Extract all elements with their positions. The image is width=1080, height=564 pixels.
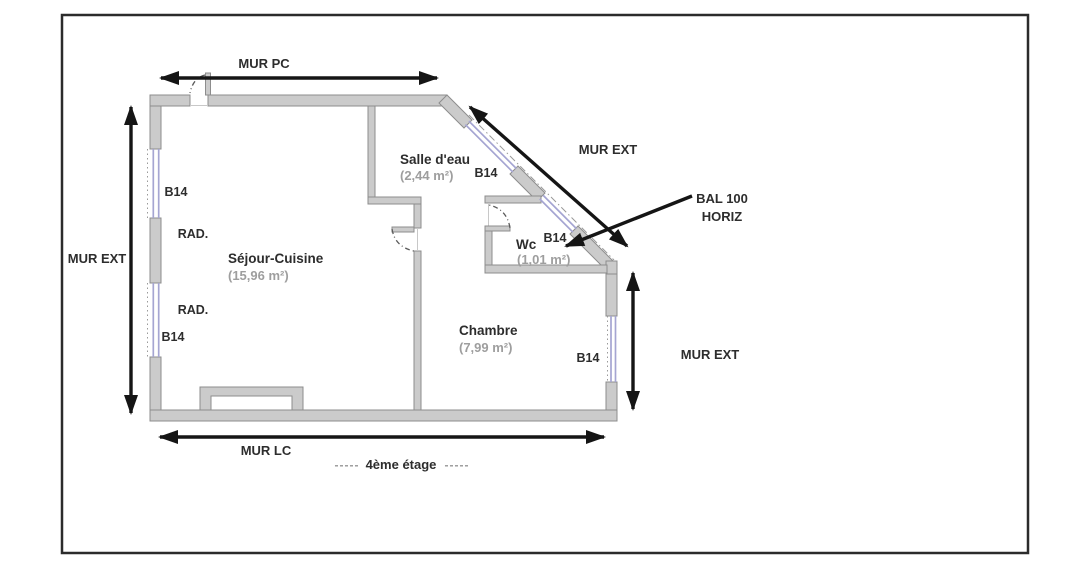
room-salle-eau-area: (2,44 m²) xyxy=(400,168,453,183)
label-mur-pc: MUR PC xyxy=(238,56,290,71)
label-mur-ext-right: MUR EXT xyxy=(681,347,740,362)
floor-plan-page: MUR PC MUR EXT MUR EXT MUR EXT MUR LC BA… xyxy=(0,0,1080,564)
wall-top-right xyxy=(208,95,447,106)
wall-top-left xyxy=(150,95,190,106)
wc-door-leaf xyxy=(485,226,510,231)
figure-border xyxy=(62,15,1028,553)
wc-wall-left xyxy=(485,227,492,267)
wall-bottom-recess xyxy=(200,387,303,410)
windows xyxy=(148,115,616,382)
label-b14-left-upper: B14 xyxy=(165,185,188,199)
label-b14-left-lower: B14 xyxy=(162,330,185,344)
wall-right-upper xyxy=(606,274,617,316)
wc-wall-top xyxy=(485,196,541,203)
room-sejour-area: (15,96 m²) xyxy=(228,268,289,283)
room-wc-area: (1,01 m²) xyxy=(517,252,570,267)
label-horiz: HORIZ xyxy=(702,209,743,224)
room-chambre-area: (7,99 m²) xyxy=(459,340,512,355)
caption-floor-text: 4ème étage xyxy=(366,457,437,472)
wall-bottom xyxy=(150,410,617,421)
room-wc-name: Wc xyxy=(516,237,537,252)
label-bal-100: BAL 100 xyxy=(696,191,748,206)
arrow-bal-100-pointer xyxy=(566,196,692,246)
label-b14-diag-upper: B14 xyxy=(475,166,498,180)
window-diagonal-lower xyxy=(543,195,576,228)
label-mur-ext-diag: MUR EXT xyxy=(579,142,638,157)
label-b14-right: B14 xyxy=(577,351,600,365)
window-diagonal-lower-inner xyxy=(540,199,573,232)
room-sejour-name: Séjour-Cuisine xyxy=(228,251,324,266)
wall-diagonal-upper xyxy=(439,95,472,128)
wc-door-swing xyxy=(489,205,510,228)
partition-step xyxy=(368,197,421,204)
partition-lower xyxy=(414,251,421,410)
label-mur-ext-left: MUR EXT xyxy=(68,251,127,266)
label-mur-lc: MUR LC xyxy=(241,443,292,458)
wall-left-middle xyxy=(150,218,161,283)
room-chambre-name: Chambre xyxy=(459,323,518,338)
window-diagonal-upper-inner xyxy=(465,125,512,172)
partition-upper xyxy=(368,106,375,198)
label-rad-upper: RAD. xyxy=(178,227,209,241)
label-rad-lower: RAD. xyxy=(178,303,209,317)
room-salle-eau-name: Salle d'eau xyxy=(400,152,470,167)
wall-right-corner xyxy=(606,261,617,274)
partition-above-door xyxy=(414,204,421,228)
caption-dashes-left: ----- xyxy=(335,458,360,472)
label-b14-diag-lower: B14 xyxy=(544,231,567,245)
caption-dashes-right: ----- xyxy=(445,458,470,472)
sejour-door-leaf xyxy=(392,227,414,232)
floor-plan-svg: MUR PC MUR EXT MUR EXT MUR EXT MUR LC BA… xyxy=(0,0,1080,564)
